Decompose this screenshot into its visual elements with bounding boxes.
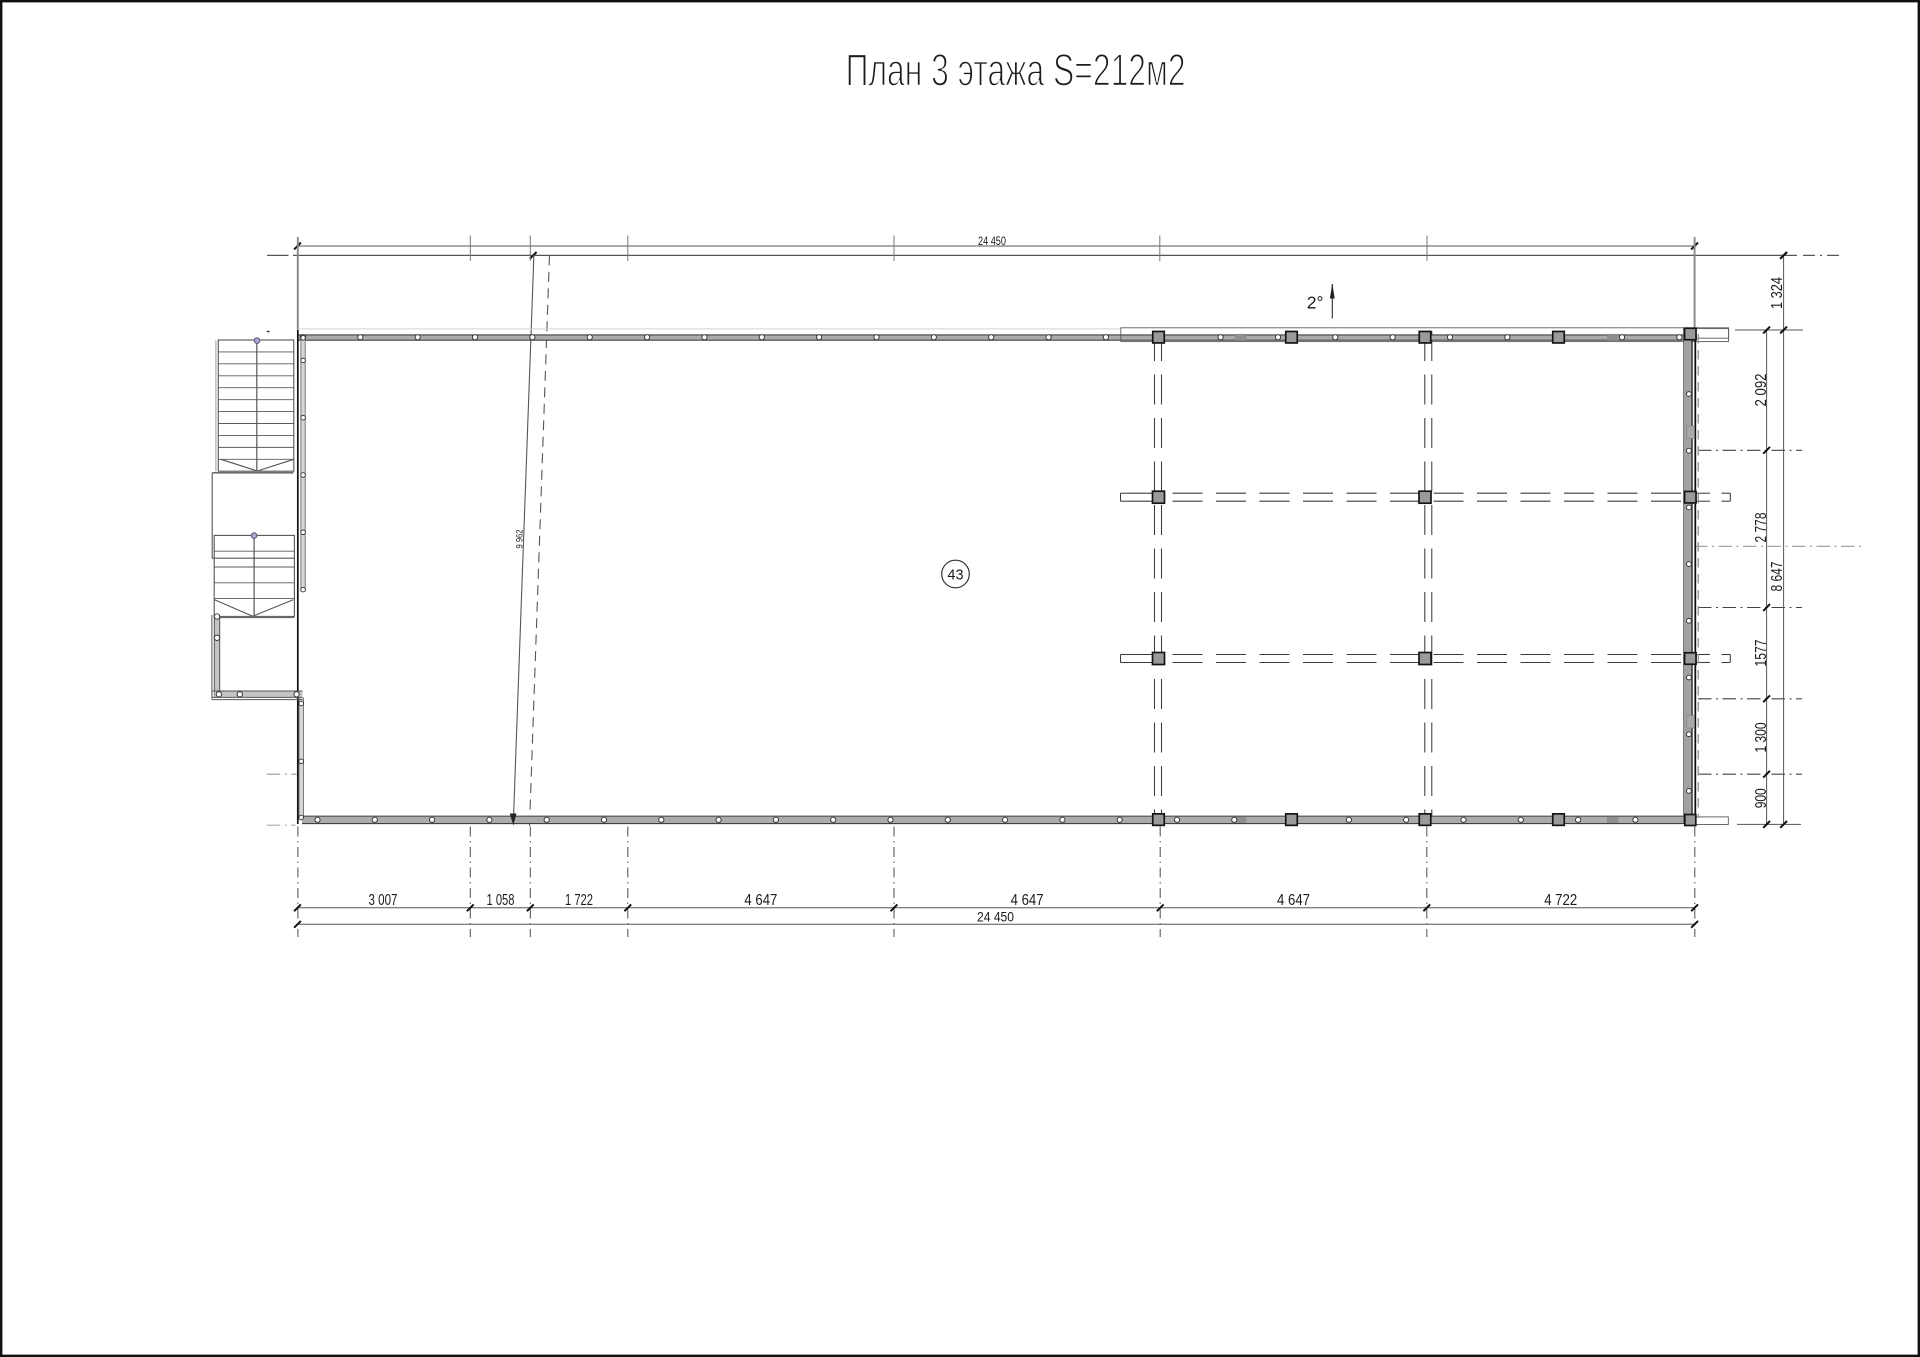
svg-text:4 647: 4 647: [744, 892, 777, 909]
svg-text:900: 900: [1753, 788, 1770, 808]
svg-text:2 778: 2 778: [1753, 512, 1770, 542]
svg-text:4 722: 4 722: [1544, 892, 1577, 909]
svg-text:4 647: 4 647: [1011, 892, 1044, 909]
svg-text:43: 43: [947, 567, 963, 583]
svg-text:2 092: 2 092: [1753, 373, 1770, 406]
svg-text:3 007: 3 007: [369, 892, 398, 909]
svg-text:1577: 1577: [1753, 639, 1770, 666]
svg-text:4 647: 4 647: [1277, 892, 1310, 909]
svg-text:8 647: 8 647: [1769, 561, 1786, 591]
svg-text:1 300: 1 300: [1753, 722, 1770, 752]
svg-text:1 722: 1 722: [565, 892, 593, 909]
svg-text:24 450: 24 450: [977, 909, 1014, 925]
svg-text:1 058: 1 058: [487, 892, 515, 909]
svg-text:1 324: 1 324: [1769, 277, 1786, 309]
svg-text:План 3 этажа S=212м2: План 3 этажа S=212м2: [846, 45, 1186, 96]
svg-text:2°: 2°: [1307, 293, 1324, 313]
svg-text:9 962: 9 962: [515, 530, 526, 549]
svg-text:24 450: 24 450: [978, 236, 1006, 248]
